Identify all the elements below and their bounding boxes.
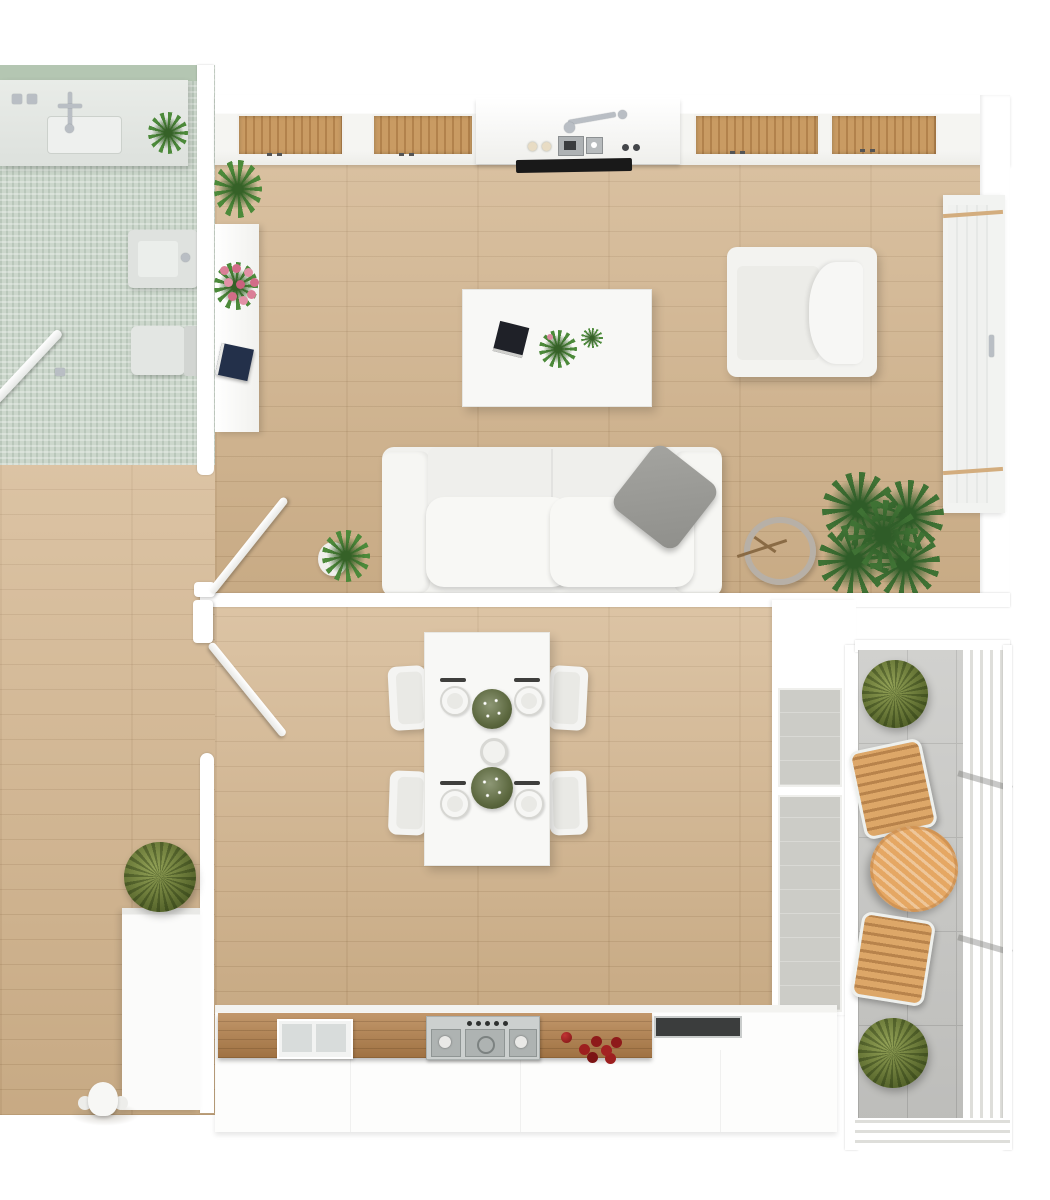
drawer-handle-icon (409, 153, 414, 156)
toilet (131, 326, 185, 375)
glass-pane (778, 688, 842, 787)
console-books (215, 343, 254, 381)
sink-basin (282, 1024, 312, 1052)
balcony-glass-door (772, 600, 856, 1015)
coffee-small-plant (581, 328, 603, 348)
floor-plant (314, 528, 370, 586)
bidet-tap-icon (181, 253, 190, 262)
cabinet-seam (520, 1055, 521, 1132)
console-flowers (212, 258, 260, 314)
knob-icon (622, 144, 629, 151)
ring-sculpture (744, 517, 816, 585)
palm-plant (822, 472, 944, 594)
balcony-bottom-railing (855, 1118, 1010, 1150)
balcony-chair-bottom (850, 911, 937, 1008)
faucet-tip-icon (618, 110, 627, 119)
floor-plan (0, 0, 1050, 1200)
flower-greens (539, 330, 577, 368)
chair-seat (552, 671, 581, 724)
centerpiece (472, 689, 512, 729)
cabinet-seam (350, 1055, 351, 1132)
sofa-seam (551, 449, 553, 503)
balcony-right-frame (1003, 645, 1012, 1150)
coffee-book (493, 321, 530, 358)
entry-fixture (70, 1078, 140, 1128)
armchair-back (809, 262, 863, 364)
console-plant (214, 160, 262, 218)
stove-knob-icon (439, 1036, 451, 1048)
window-pane (948, 205, 988, 503)
balcony-shrub (862, 660, 928, 728)
drawer-handle-icon (730, 151, 735, 154)
balcony-left-frame (845, 645, 858, 1150)
stove-dot-icon (467, 1021, 472, 1026)
drawer-handle-icon (860, 149, 865, 152)
drawer-handle-icon (277, 153, 282, 156)
sofa-cushion (426, 497, 570, 587)
palm-frond (848, 500, 918, 570)
flower-blooms-icon (547, 334, 553, 340)
counter-slat-panel (830, 114, 938, 156)
bidet (128, 230, 198, 288)
sink-basin (316, 1024, 346, 1052)
cooktop-module-icon (558, 136, 584, 156)
balcony-railing (963, 650, 1008, 1120)
drawer-handle-icon (870, 149, 875, 152)
centerpiece (471, 767, 513, 809)
console-table (215, 224, 259, 432)
place-setting (514, 686, 544, 716)
armchair-seat (737, 266, 819, 360)
faucet-icon (568, 112, 616, 125)
coffee-flowers (539, 328, 579, 370)
divider-wall (200, 593, 1010, 607)
oven-panel (465, 1029, 505, 1057)
dining-chair (547, 665, 588, 731)
plant-leaves (322, 530, 370, 582)
counter-slat-panel (694, 114, 820, 156)
dining-chair (387, 665, 428, 731)
dining-chair (548, 770, 588, 835)
cutlery-icon (440, 678, 466, 682)
red-fruit (561, 1032, 572, 1043)
flower-blooms-icon (220, 266, 229, 275)
chair-seat (396, 777, 424, 830)
faucet-icon (68, 92, 72, 126)
fixture-knob-icon (88, 1082, 118, 1116)
sofa (382, 447, 722, 597)
sofa-armrest (382, 451, 430, 593)
faucet-base-icon (564, 122, 575, 133)
knob-icon (633, 144, 640, 151)
dining-chair (388, 770, 428, 835)
chair-seat (552, 777, 580, 830)
knob-icon (542, 142, 551, 151)
kitchenette-vent (516, 158, 632, 173)
drawer-handle-icon (740, 151, 745, 154)
counter-slat-panel (237, 114, 344, 156)
cabinet-seam (720, 1050, 721, 1132)
dark-cooktop (654, 1016, 742, 1038)
faucet-crossbar-icon (58, 104, 82, 108)
faucet-handles-icon (27, 94, 37, 104)
kitchen-sink (277, 1019, 353, 1059)
place-setting (440, 789, 470, 819)
knob-icon (528, 142, 537, 151)
place-setting (514, 789, 544, 819)
serving-bowl (480, 738, 508, 766)
cutlery-icon (514, 781, 540, 785)
glass-pane (778, 795, 842, 1012)
cutlery-icon (514, 678, 540, 682)
drawer-handle-icon (267, 153, 272, 156)
shower-hinge-icon (55, 368, 65, 376)
balcony-table (870, 826, 958, 912)
stove-knob-icon (515, 1036, 527, 1048)
cutlery-icon (440, 781, 466, 785)
kitchenette-sink (476, 98, 680, 164)
hall-plant (124, 842, 196, 912)
chair-seat (396, 671, 425, 724)
window-handle-icon (989, 335, 994, 357)
vanity-plant (148, 112, 188, 154)
faucet-spout-icon (65, 124, 74, 133)
armchair (727, 247, 877, 377)
place-setting (440, 686, 470, 716)
vanity-basin (47, 116, 122, 154)
drawer-handle-icon (399, 153, 404, 156)
balcony-shrub (858, 1018, 928, 1088)
door-pivot-stub (193, 600, 213, 643)
bidet-basin (138, 241, 178, 277)
cooktop-module-icon (586, 137, 603, 154)
window (943, 195, 1005, 513)
counter-slat-panel (372, 114, 474, 156)
coffee-table (462, 289, 652, 407)
hall-wall-stub (200, 753, 214, 1113)
bathroom-wall-tile (0, 65, 197, 81)
stove (426, 1016, 540, 1060)
faucet-handles-icon (12, 94, 22, 104)
